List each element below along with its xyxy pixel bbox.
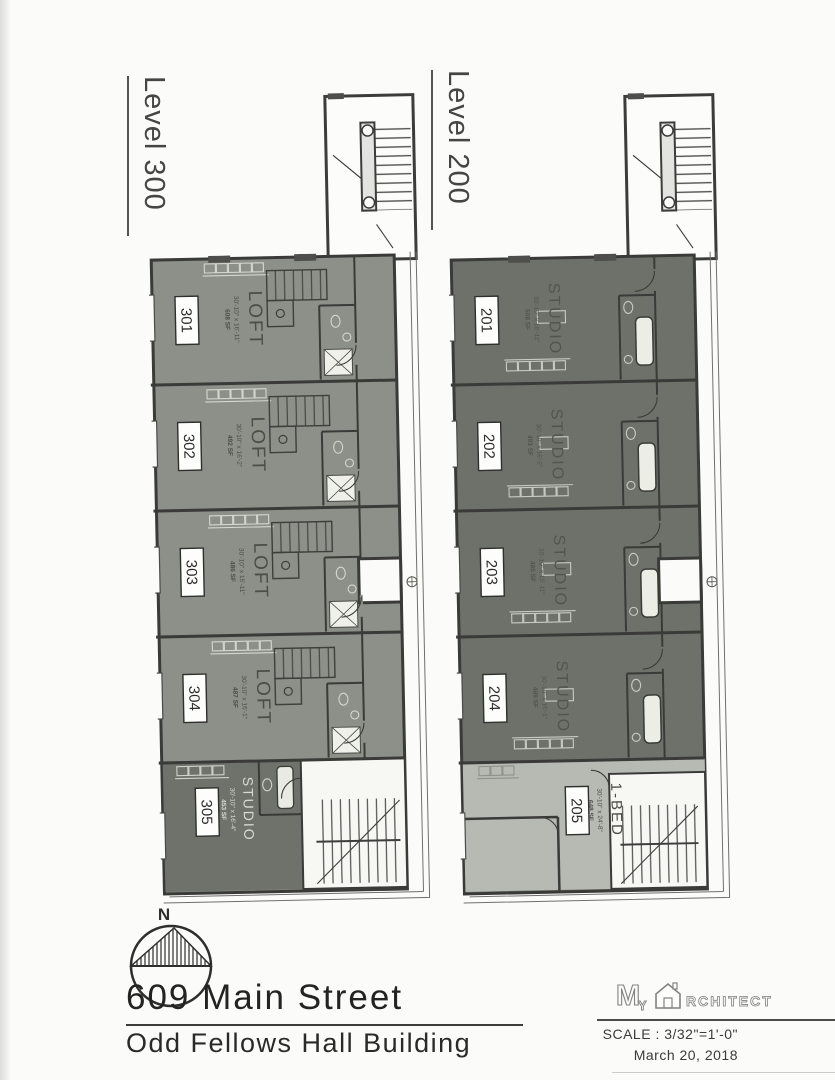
unit-area-label: 485 SF (529, 561, 536, 582)
unit-type-label: LOFT (252, 668, 274, 725)
stair-tower-top-l300 (322, 91, 422, 265)
logo-text-rchitect: RCHITECT (686, 993, 773, 1009)
unit-area-label: 492 SF (226, 435, 233, 456)
unit-area-label: 453 SF (220, 799, 227, 820)
unit-number-badge: 203 (480, 548, 504, 596)
unit-type-label: STUDIO (547, 409, 566, 482)
window-bay (458, 813, 466, 859)
svg-text:205: 205 (568, 798, 586, 823)
unit-area-label: 487 SF (231, 687, 238, 708)
elevator-shaft (659, 558, 718, 603)
stair-treads (374, 126, 412, 211)
elevator-shaft (359, 558, 418, 603)
unit-number-badge: 205 (565, 786, 589, 834)
title-underline (126, 1024, 523, 1026)
logo-letter-m: M (616, 980, 640, 1012)
unit-dims-label: 30'-10" x 16'-2" (235, 423, 243, 467)
level-300-floor-plan: 301 LOFT 30'-10" x 16'-11" 608 SF 302 LO… (148, 251, 438, 909)
unit-number-badge: 304 (183, 674, 207, 722)
unit-area-label: 648 SF (587, 800, 594, 821)
project-address: 609 Main Street (126, 978, 596, 1018)
scale-note: SCALE : 3/32"=1'-0" (560, 1024, 738, 1045)
unit-number-badge: 305 (195, 788, 219, 836)
unit-dims-label: 30'-10" x 16'-2" (535, 423, 543, 467)
unit-dims-label: 30'-10" x 16'-4" (228, 788, 236, 832)
svg-text:204: 204 (485, 686, 503, 711)
bottom-faint-line (612, 1072, 835, 1073)
house-icon (656, 983, 680, 1008)
north-label: N (158, 905, 170, 924)
unit-number-badge: 301 (175, 296, 199, 344)
stamp-divider-line (597, 1019, 835, 1021)
unit-number-badge: 202 (478, 422, 502, 470)
unit-area-label: 489 SF (531, 687, 538, 708)
unit-dims-label: 30'-10" x 15'-11" (237, 548, 245, 596)
unit-dims-label: 30'-10" x 16'-1" (240, 675, 248, 719)
unit-number-badge: 201 (475, 296, 499, 344)
svg-text:305: 305 (198, 799, 216, 824)
unit-number-badge: 303 (180, 548, 204, 596)
svg-text:304: 304 (185, 686, 203, 711)
unit-dims-label: 30'-10" x 24'-8" (595, 788, 603, 832)
unit-type-label: 1-BED (607, 783, 625, 838)
floor-plan-sheet: Level 300 Level 200 (0, 0, 835, 1080)
unit-type-label: STUDIO (553, 660, 572, 733)
svg-text:202: 202 (480, 434, 498, 459)
stair-treads (674, 126, 712, 211)
unit-type-label: LOFT (247, 416, 269, 473)
unit-area-label: 493 SF (526, 435, 533, 456)
unit-dims-label: 30'-10" x 16'-11" (532, 296, 540, 344)
unit-number-badge: 302 (178, 422, 202, 470)
building-name: Odd Fellows Hall Building (126, 1028, 596, 1059)
exit-stair-l300 (301, 758, 408, 889)
logo-letter-y: Y (638, 998, 647, 1013)
window-bay (158, 813, 166, 859)
scan-edge-shadow (0, 0, 11, 1080)
title-block: 609 Main Street Odd Fellows Hall Buildin… (126, 978, 596, 1059)
svg-text:203: 203 (482, 560, 500, 585)
unit-area-label: 508 SF (523, 309, 530, 330)
level-300-plan: 301 LOFT 30'-10" x 16'-11" 608 SF 302 LO… (145, 91, 458, 913)
svg-text:302: 302 (180, 434, 198, 459)
unit-type-label: STUDIO (545, 283, 564, 356)
svg-text:303: 303 (182, 560, 200, 585)
svg-text:201: 201 (477, 308, 495, 333)
tub-icon (277, 766, 294, 808)
unit-type-label: STUDIO (240, 777, 257, 842)
unit-area-label: 486 SF (229, 561, 236, 582)
date-note: March 20, 2018 (560, 1045, 738, 1066)
level-200-plan: 201 STUDIO 30'-10" x 16'-11" 508 SF 202 … (445, 91, 758, 913)
unit-dims-label: 30'-10" x 16'-11" (232, 296, 240, 344)
unit-type-label: LOFT (249, 542, 271, 599)
unit-area-label: 608 SF (223, 309, 230, 330)
unit-dims-label: 30'-10" x 16'-1" (540, 675, 548, 719)
level-200-floor-plan: 201 STUDIO 30'-10" x 16'-11" 508 SF 202 … (448, 251, 738, 909)
unit-dims-label: 30'-10" x 15'-11" (537, 548, 545, 596)
unit-number-badge: 204 (483, 674, 507, 722)
unit-type-label: LOFT (244, 290, 266, 347)
architect-logo: M Y RCHITECT (612, 978, 822, 1014)
unit-type-label: STUDIO (550, 535, 569, 608)
svg-text:301: 301 (177, 308, 195, 333)
stair-tower-top-l200 (622, 91, 722, 265)
